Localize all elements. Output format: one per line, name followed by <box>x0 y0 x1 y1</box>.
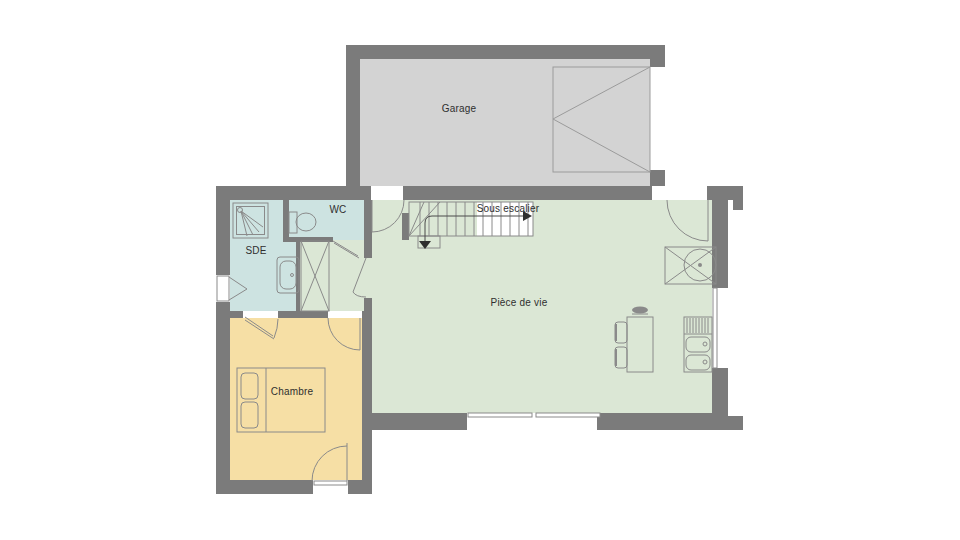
wall-garage-top <box>346 45 665 59</box>
right-window-opening <box>712 288 728 368</box>
floor-plan: Garage WC SDE Sous escalier Pièce de vie… <box>0 0 960 540</box>
hall-floor <box>296 240 372 312</box>
wall-left <box>216 200 230 480</box>
sde-chambre-door-opening <box>243 311 278 318</box>
garage-floor <box>360 59 650 186</box>
sde-label: SDE <box>245 245 266 256</box>
garage-door-opening <box>650 67 665 170</box>
wall-bottom-right-bump <box>728 416 743 430</box>
chambre-label: Chambre <box>271 386 314 397</box>
chambre-floor <box>230 318 362 480</box>
chambre-bottom-door-opening <box>313 480 348 494</box>
sde-window-opening <box>216 275 230 302</box>
garage-living-door-opening <box>371 186 403 200</box>
wc-floor <box>287 200 366 240</box>
hall-living-doorway <box>364 258 372 298</box>
hall-chambre-door-opening <box>328 311 362 318</box>
wall-wc-sde-divider <box>283 199 289 240</box>
entry-door-opening <box>652 186 707 200</box>
wc-label: WC <box>329 204 346 215</box>
wall-chambre-right <box>362 311 372 494</box>
sous-escalier-label: Sous escalier <box>477 203 540 214</box>
wall-stair-stub <box>402 213 409 240</box>
wall-sde-closet-divider <box>296 240 300 312</box>
garage-label: Garage <box>442 103 477 114</box>
wall-garage-left <box>346 59 360 200</box>
bay-window-opening <box>467 413 597 430</box>
wall-wc-bottom <box>283 237 333 242</box>
wall-top-right-notch <box>733 200 743 210</box>
wall-chambre-bottom <box>216 480 372 494</box>
piece-de-vie-label: Pièce de vie <box>491 297 548 308</box>
